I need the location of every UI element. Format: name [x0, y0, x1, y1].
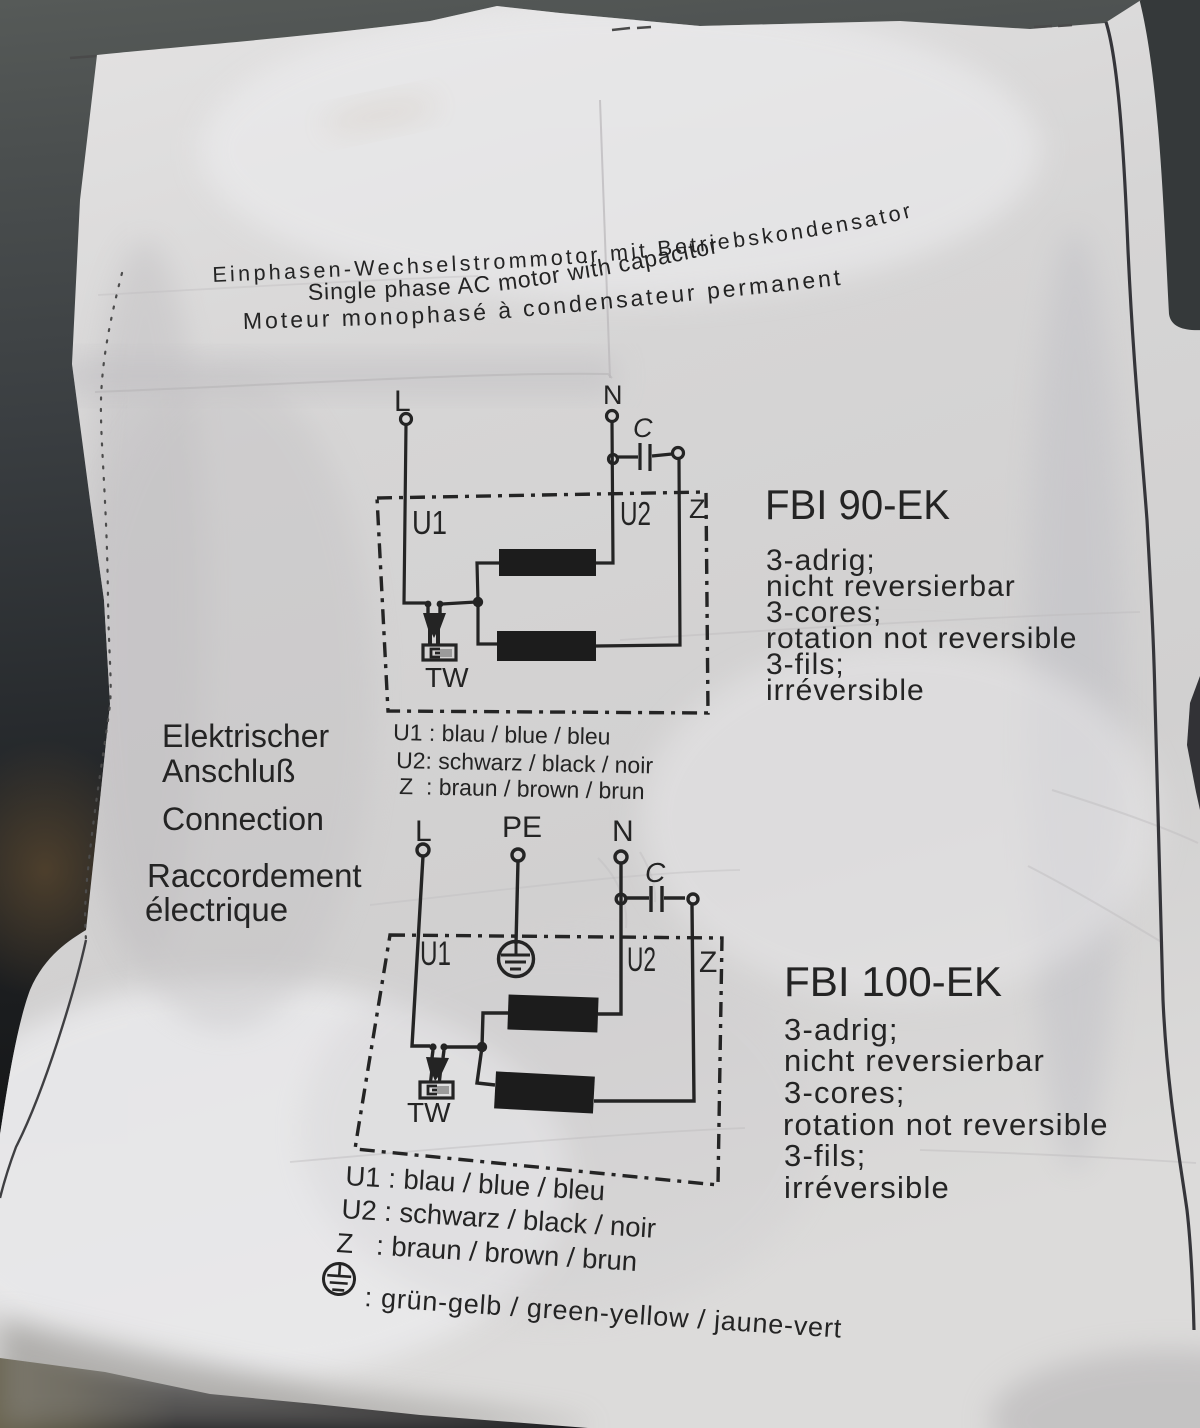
- svg-text:U2: U2: [620, 495, 651, 532]
- svg-text:TW: TW: [425, 662, 469, 693]
- svg-text:U1: U1: [412, 504, 447, 541]
- svg-text:PE: PE: [502, 811, 542, 844]
- svg-text:Z : braun / brown / brun: Z : braun / brown / brun: [399, 773, 645, 804]
- svg-text:U1: U1: [420, 935, 451, 973]
- svg-text:Z: Z: [699, 946, 717, 979]
- svg-text:Connection: Connection: [162, 801, 324, 837]
- svg-text:U1 : blau / blue / bleu: U1 : blau / blue / bleu: [393, 719, 611, 750]
- svg-text:irréversible: irréversible: [784, 1170, 950, 1205]
- svg-text:3-cores;: 3-cores;: [784, 1075, 906, 1110]
- svg-text:Z: Z: [689, 494, 706, 524]
- svg-text:N: N: [603, 380, 623, 410]
- svg-text:3-adrig;: 3-adrig;: [784, 1012, 899, 1047]
- svg-text:FBI 90-EK: FBI 90-EK: [765, 481, 950, 528]
- svg-text:TW: TW: [407, 1097, 451, 1128]
- svg-text:C: C: [645, 857, 666, 888]
- svg-text:électrique: électrique: [145, 891, 288, 928]
- svg-text:U2: U2: [627, 941, 656, 979]
- svg-text:FBI 100-EK: FBI 100-EK: [784, 958, 1002, 1005]
- svg-text:nicht reversierbar: nicht reversierbar: [784, 1043, 1045, 1078]
- svg-text:Raccordement: Raccordement: [147, 857, 362, 894]
- svg-text:Anschluß: Anschluß: [162, 753, 295, 789]
- svg-text:rotation not reversible: rotation not reversible: [783, 1107, 1109, 1142]
- svg-text:N: N: [612, 815, 634, 848]
- svg-text:C: C: [633, 413, 653, 443]
- svg-text:3-fils;: 3-fils;: [784, 1138, 866, 1173]
- svg-text:Elektrischer: Elektrischer: [162, 718, 330, 754]
- svg-text:irréversible: irréversible: [766, 674, 925, 707]
